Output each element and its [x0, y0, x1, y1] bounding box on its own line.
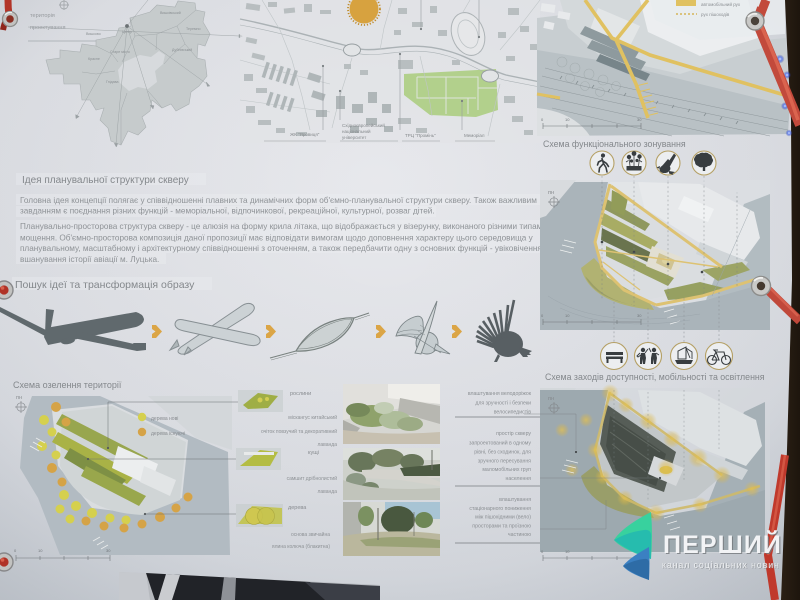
svg-text:Вишково: Вишково: [86, 32, 101, 36]
svg-text:територія: територія: [30, 13, 55, 19]
svg-text:Красне: Красне: [88, 57, 100, 61]
svg-text:кущі: кущі: [308, 450, 319, 456]
svg-text:влаштування велодоріжок: влаштування велодоріжок: [468, 391, 532, 397]
svg-text:між пішохідними (вело): між пішохідними (вело): [475, 515, 531, 521]
svg-text:стаціонарного пониження: стаціонарного пониження: [469, 506, 531, 512]
svg-text:зручного пересування: зручного пересування: [478, 459, 531, 465]
svg-text:населення: населення: [505, 476, 531, 482]
svg-text:10: 10: [38, 548, 43, 553]
svg-text:Пошук ідеї та трансформація об: Пошук ідеї та трансформація образу: [15, 279, 195, 291]
svg-text:пн: пн: [548, 396, 554, 402]
svg-text:самшит дрібнолистий: самшит дрібнолистий: [287, 475, 338, 482]
svg-text:простір скверу: простір скверу: [496, 431, 531, 437]
svg-text:Головна ідея концепції полягає: Головна ідея концепції полягає у співвід…: [20, 196, 537, 205]
svg-text:ТРЦ "Промінь": ТРЦ "Промінь": [405, 133, 436, 138]
svg-text:планувальному, масштабному і а: планувальному, масштабному і архітектурн…: [20, 244, 546, 253]
svg-text:10: 10: [565, 117, 570, 122]
svg-text:Планувально-просторова структу: Планувально-просторова структура скверу …: [20, 222, 547, 231]
svg-text:лаванда: лаванда: [317, 489, 337, 495]
svg-text:рівні, без сходинок, для: рівні, без сходинок, для: [474, 450, 531, 456]
svg-text:національний: національний: [342, 128, 371, 134]
svg-text:автомобільний рух: автомобільний рух: [701, 1, 741, 7]
svg-text:дерева: дерева: [288, 505, 307, 511]
svg-text:рослини: рослини: [290, 391, 311, 397]
svg-text:Дубнівський: Дубнівський: [172, 48, 192, 52]
svg-text:канал соціальних новин: канал соціальних новин: [662, 560, 780, 570]
svg-text:вшанування історії авіації м.: вшанування історії авіації м. Луцька.: [20, 255, 159, 264]
svg-text:Схема заходів доступності, моб: Схема заходів доступності, мобільності т…: [545, 372, 765, 382]
svg-text:ПЕРШИЙ: ПЕРШИЙ: [663, 529, 782, 559]
svg-text:міскангус китайський: міскангус китайський: [288, 414, 337, 421]
svg-text:маломобільних груп: маломобільних груп: [482, 467, 531, 473]
svg-text:Схема функціонального зонуванн: Схема функціонального зонування: [543, 139, 686, 149]
svg-text:пн: пн: [548, 190, 554, 196]
svg-text:запроектований в одному: запроектований в одному: [469, 440, 531, 447]
svg-text:Схема озелення території: Схема озелення території: [13, 380, 122, 390]
svg-text:30: 30: [637, 313, 642, 318]
svg-text:дерева нові: дерева нові: [151, 416, 178, 422]
svg-text:Гнідава: Гнідава: [106, 80, 119, 84]
svg-text:дерева існуючі: дерева існуючі: [151, 431, 185, 437]
svg-text:ЖК "Яровиця": ЖК "Яровиця": [290, 132, 320, 137]
svg-text:частиною: частиною: [508, 532, 531, 538]
svg-text:Центр: Центр: [122, 30, 132, 34]
svg-text:мощення. Об'ємно-просторова ко: мощення. Об'ємно-просторова композиція д…: [20, 234, 534, 243]
svg-text:очіток повзучий та декоративни: очіток повзучий та декоративний: [261, 428, 337, 435]
svg-text:велосипедистів: велосипедистів: [494, 410, 531, 416]
svg-text:Вишківський: Вишківський: [160, 11, 181, 15]
svg-text:пн: пн: [16, 395, 22, 401]
svg-text:Меморіал: Меморіал: [464, 133, 485, 138]
svg-text:завданням є поєднання різних ф: завданням є поєднання різних функцій - м…: [20, 207, 435, 216]
svg-text:Східноєвропейський: Східноєвропейський: [342, 122, 385, 128]
svg-text:Теремно: Теремно: [186, 27, 200, 31]
svg-text:для зручності і безпеки: для зручності і безпеки: [475, 401, 531, 407]
svg-text:університет: університет: [342, 135, 366, 140]
svg-text:10: 10: [565, 549, 570, 554]
svg-text:10: 10: [565, 313, 570, 318]
svg-text:Старе місто: Старе місто: [110, 50, 130, 54]
svg-text:Ідея планувальної структури ск: Ідея планувальної структури скверу: [22, 175, 189, 186]
svg-text:лаванда: лаванда: [317, 442, 337, 448]
svg-text:влаштування: влаштування: [499, 497, 531, 503]
svg-text:30: 30: [637, 117, 642, 122]
svg-text:основа звичайна: основа звичайна: [291, 531, 330, 538]
svg-text:ялина колюча (блакитна): ялина колюча (блакитна): [272, 544, 330, 550]
svg-text:30: 30: [106, 548, 111, 553]
svg-text:просторами та проїзною: просторами та проїзною: [472, 524, 531, 530]
svg-text:рух пішоходів: рух пішоходів: [701, 12, 730, 17]
